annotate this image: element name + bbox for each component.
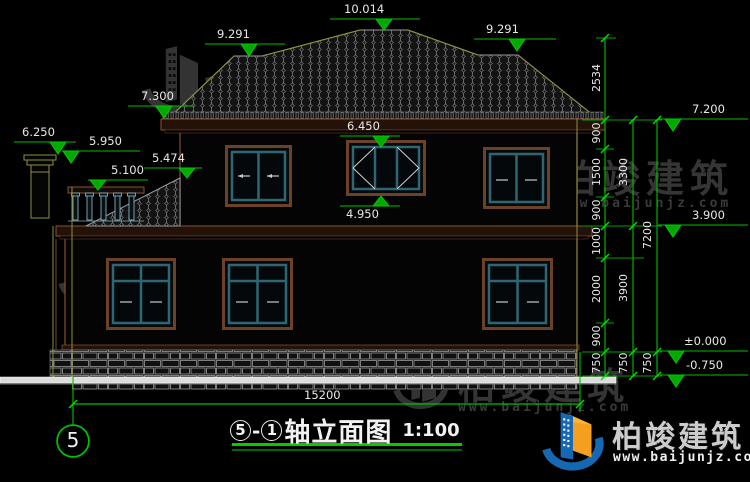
ground-line [0, 377, 616, 383]
elev-label-second-floor: 3.900 [692, 209, 725, 222]
elev-label-zero-level: ±0.000 [684, 335, 727, 348]
brand-url: www.baijunjz.com [613, 450, 750, 465]
dim-chainB-750: 750 [618, 341, 630, 385]
dim-chainA-900a: 900 [591, 111, 603, 155]
elevation-drawing-canvas: 柏竣建筑 www.baijunjz.com 柏竣建筑 www.baijunjz.… [0, 0, 750, 482]
main-roof [168, 30, 598, 119]
brand-logo-icon [538, 406, 610, 478]
elev-label-ground: -0.750 [686, 359, 723, 372]
window-2f-center [348, 142, 425, 195]
window-1f-left [108, 260, 175, 329]
eave-tile-row [163, 112, 603, 119]
elev-label-chimney-top: 6.250 [22, 126, 55, 139]
elev-label-window-head: 6.450 [347, 120, 380, 133]
chimney [24, 155, 56, 218]
window-1f-right [484, 260, 552, 329]
elev-label-ridge: 10.014 [344, 3, 384, 16]
dim-chainA-750: 750 [591, 341, 603, 385]
dim-chainA-1000: 1000 [591, 219, 603, 263]
brand-logo: 柏竣建筑 www.baijunjz.com [538, 406, 750, 480]
elev-label-railing-top: 5.100 [111, 164, 144, 177]
title-scale: 1:100 [402, 420, 459, 441]
drawing-title: 5 - 1 轴立面图 1:100 [230, 412, 460, 449]
elev-label-sub-left: 9.291 [217, 28, 250, 41]
title-dash: - [252, 419, 260, 443]
dim-chainC-7200: 7200 [642, 213, 654, 257]
elev-label-window-sill: 4.950 [346, 208, 379, 221]
belt-course [56, 226, 592, 236]
elev-label-eave-left: 7.300 [141, 90, 174, 103]
axis-bubble-5: 5 [57, 425, 89, 457]
elev-label-chimney-cap: 5.950 [89, 135, 122, 148]
elev-label-eave-right: 7.200 [692, 103, 725, 116]
balustrade [68, 187, 144, 221]
dim-chainB-3300: 3300 [618, 150, 630, 194]
stone-plinth [50, 350, 577, 377]
dim-chainB-3900: 3900 [618, 266, 630, 310]
title-text: 轴立面图 [284, 412, 392, 449]
window-2f-right [485, 149, 549, 208]
eave-fascia [161, 119, 605, 130]
elev-label-shed-top: 5.474 [152, 152, 185, 165]
dim-chainC-750: 750 [642, 341, 654, 385]
dim-total-width: 15200 [304, 389, 341, 402]
window-1f-middle [224, 260, 292, 329]
title-axis-start: 5 [230, 420, 251, 441]
title-axis-end: 1 [261, 420, 282, 441]
house-structure [0, 30, 616, 390]
dim-chainA-2534: 2534 [591, 56, 603, 100]
dim-chainA-2000: 2000 [591, 267, 603, 311]
window-2f-left [227, 147, 291, 206]
elev-label-sub-right: 9.291 [486, 23, 519, 36]
